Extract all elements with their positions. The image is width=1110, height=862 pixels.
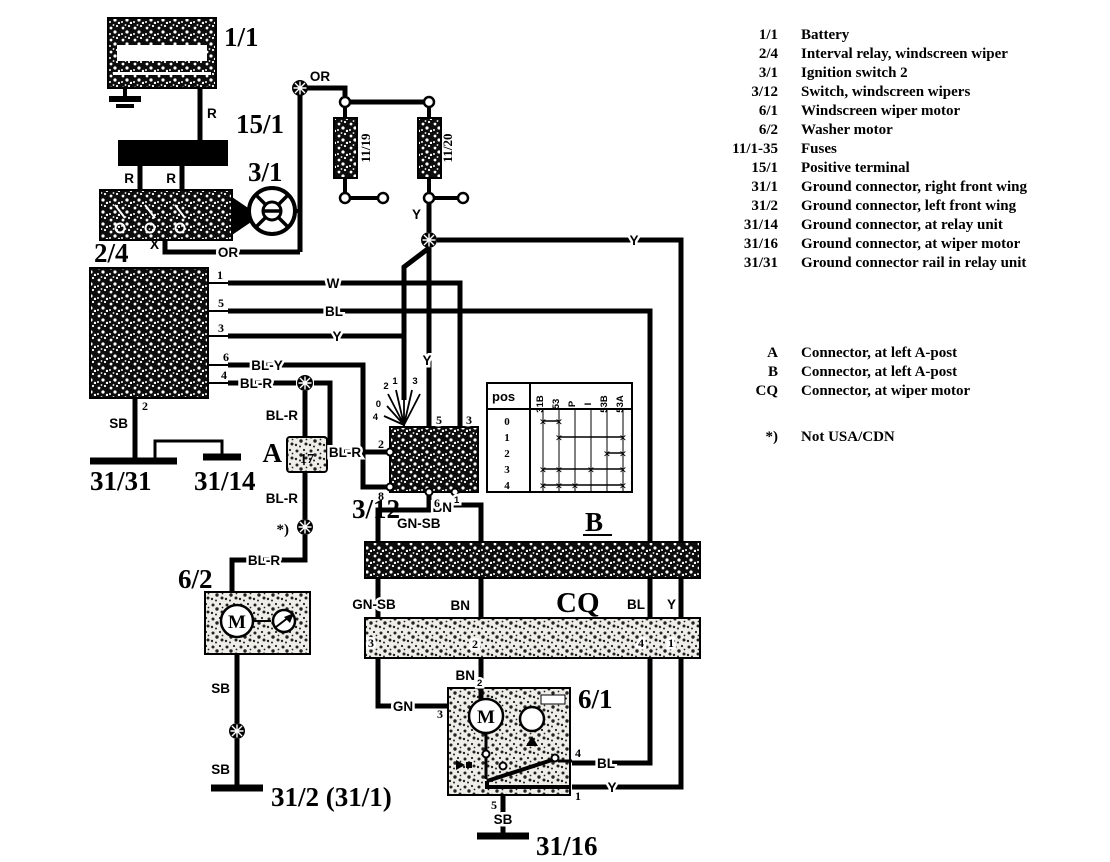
cq-pin-4: 4: [638, 636, 644, 650]
relay-pin-3: 3: [218, 321, 224, 335]
wire-label-sb: SB: [109, 416, 128, 431]
washer-m-letter: M: [228, 612, 246, 633]
legend-desc: Ground connector rail in relay unit: [778, 254, 1026, 273]
wire-label-y: Y: [667, 597, 676, 612]
wire-label-bl-r: BL-R: [266, 408, 298, 423]
relay-pin-6: 6: [223, 350, 229, 364]
legend-desc: Ground connector, at wiper motor: [778, 235, 1020, 254]
legend-row: 11/1-35Fuses: [700, 140, 1108, 159]
legend-desc: Ignition switch 2: [778, 64, 908, 83]
cq-pin-3: 3: [368, 636, 374, 650]
wire-label-sb: SB: [211, 681, 230, 696]
legend-id: 31/14: [700, 216, 778, 235]
fuse-terminal: [458, 193, 468, 203]
pos-table-header: pos: [492, 389, 515, 404]
legend-id: B: [700, 363, 778, 382]
switch-pin: [387, 484, 394, 491]
washer-motor-label: 6/2: [178, 564, 213, 594]
legend-note-text: Not USA/CDN: [778, 428, 895, 447]
ground-31-2-label: 31/2 (31/1): [271, 782, 392, 812]
positive-terminal-label: 15/1: [236, 109, 284, 139]
pos-table-contact-mark: ×: [619, 446, 626, 461]
pos-table-row-label: 0: [504, 416, 510, 428]
motor-m-letter: M: [477, 707, 495, 728]
legend: 1/1Battery2/4Interval relay, windscreen …: [700, 0, 1108, 862]
legend-id: A: [700, 344, 778, 363]
wiper-switch-body: [390, 427, 478, 492]
ground-31-16-label: 31/16: [536, 831, 598, 861]
pos-table-contact-mark: ×: [555, 430, 562, 445]
cq-pin-2: 2: [472, 637, 478, 651]
interval-relay-body: [90, 268, 208, 398]
legend-row: 31/16Ground connector, at wiper motor: [700, 235, 1108, 254]
wire-label-bl-y: BL-Y: [251, 358, 283, 373]
wire-label-r: R: [124, 171, 134, 186]
pos-table-contact-mark: ×: [619, 430, 626, 445]
legend-id: 31/2: [700, 197, 778, 216]
wire-label-gn-sb: GN-SB: [352, 597, 396, 612]
legend-desc: Windscreen wiper motor: [778, 102, 960, 121]
legend-row: AConnector, at left A-post: [700, 344, 1108, 363]
motor-pin-1: 1: [575, 789, 581, 803]
pos-table-terminal-label: 53: [551, 399, 562, 410]
legend-row: 3/12Switch, windscreen wipers: [700, 83, 1108, 102]
motor-slot: [541, 695, 565, 704]
legend-row: 31/1Ground connector, right front wing: [700, 178, 1108, 197]
pos-table-contact-mark: ×: [539, 462, 546, 477]
pos-table-contact-mark: ×: [539, 414, 546, 429]
pos-table-contact-mark: ×: [539, 478, 546, 493]
motor-pin-4: 4: [575, 746, 581, 760]
switch-pin: [387, 449, 394, 456]
legend-desc: Fuses: [778, 140, 837, 159]
pos-table-contact-mark: ×: [571, 478, 578, 493]
legend-desc: Connector, at wiper motor: [778, 382, 970, 401]
motor-contact: [500, 763, 507, 770]
splice-connector: [421, 232, 437, 248]
positive-terminal-bar: [118, 140, 228, 166]
wire-label-bl-r: BL-R: [266, 491, 298, 506]
legend-id: 31/1: [700, 178, 778, 197]
fan-pos-2: 2: [383, 381, 388, 392]
legend-desc: Connector, at left A-post: [778, 363, 957, 382]
legend-row: 31/14Ground connector, at relay unit: [700, 216, 1108, 235]
splice-connector: [292, 80, 308, 96]
legend-row: 2/4Interval relay, windscreen wiper: [700, 45, 1108, 64]
pos-table-terminal-label: 31B: [535, 395, 546, 413]
relay-pin-2: 2: [142, 399, 148, 413]
wire-label-y: Y: [607, 780, 616, 795]
splice-connector: [297, 375, 313, 391]
cq-pin-1: 1: [668, 636, 674, 650]
relay-label: 2/4: [94, 238, 129, 268]
wire-label-bn: BN: [456, 668, 476, 683]
legend-row: 15/1Positive terminal: [700, 159, 1108, 178]
motor-contact: [483, 751, 490, 758]
battery-line: [113, 72, 211, 75]
motor-square-mark: [466, 762, 472, 768]
park-contact-circle: [520, 707, 544, 731]
wire-label-w: W: [327, 276, 340, 291]
legend-desc: Ground connector, left front wing: [778, 197, 1016, 216]
fan-pos-0: 0: [401, 373, 406, 384]
legend-row: 1/1Battery: [700, 26, 1108, 45]
pos-table-contact-mark: ×: [555, 462, 562, 477]
fuse-terminal: [340, 97, 350, 107]
switch-pin-8: 8: [378, 489, 384, 503]
legend-desc: Ground connector, right front wing: [778, 178, 1027, 197]
connector-cq-bar: [365, 618, 700, 658]
legend-row: 6/1Windscreen wiper motor: [700, 102, 1108, 121]
pos-table-row-label: 4: [504, 480, 510, 492]
relay-pin-1: 1: [217, 268, 223, 282]
connector-b-bar: [365, 542, 700, 578]
pos-table-row-label: 3: [504, 464, 510, 476]
motor-pin-5: 5: [491, 798, 497, 812]
legend-note: *) Not USA/CDN: [700, 428, 1108, 447]
legend-connectors: AConnector, at left A-postBConnector, at…: [700, 344, 1108, 401]
fan-pos-3: 3: [412, 376, 417, 387]
wire-label-bn: BN: [451, 598, 471, 613]
legend-id: 6/2: [700, 121, 778, 140]
switch-pin-3: 3: [466, 413, 472, 427]
wire-label-bl-r: BL-R: [329, 445, 361, 460]
switch-position-table: pos 31B53PI53B53A0××1××2××3××××4××××: [487, 383, 632, 493]
fuse-11-20-label: 11/20: [440, 134, 455, 163]
fan-pos-1: 1: [392, 376, 398, 387]
pos-table-row-label: 2: [504, 448, 510, 460]
ignition-label: 3/1: [248, 157, 283, 187]
splice-connector: [229, 723, 245, 739]
wire-label-bl: BL: [597, 756, 615, 771]
legend-desc: Switch, windscreen wipers: [778, 83, 970, 102]
fuse-terminal: [340, 193, 350, 203]
wire-fuse-bottoms: [345, 178, 429, 193]
switch-pin-5: 5: [436, 413, 442, 427]
wire-fuse-tops: [345, 107, 429, 118]
legend-desc: Ground connector, at relay unit: [778, 216, 1003, 235]
legend-id: 11/1-35: [700, 140, 778, 159]
not-usa-mark: *): [277, 522, 290, 538]
pos-table-contact-mark: ×: [619, 478, 626, 493]
legend-id: 3/1: [700, 64, 778, 83]
wire-label-sb: SB: [494, 812, 513, 827]
wiring-diagram-page: pos 31B53PI53B53A0××1××2××3××××4××××: [0, 0, 1110, 862]
connector-a-pin-label: 17: [300, 452, 314, 467]
wire-label-bl: BL: [627, 597, 645, 612]
wire-label-y: Y: [629, 233, 638, 248]
legend-id: 15/1: [700, 159, 778, 178]
legend-row: 31/2Ground connector, left front wing: [700, 197, 1108, 216]
legend-components: 1/1Battery2/4Interval relay, windscreen …: [700, 26, 1108, 273]
legend-id: 6/1: [700, 102, 778, 121]
relay-pin-4: 4: [221, 368, 227, 382]
wire-label-bn-sub: 2: [477, 678, 482, 689]
wire-label-or: OR: [218, 245, 239, 260]
fuse-11-19-label: 11/19: [358, 133, 373, 162]
pos-table-contact-mark: ×: [587, 462, 594, 477]
ground-31-14-label: 31/14: [194, 466, 256, 496]
relay-pin-5: 5: [218, 296, 224, 310]
wire-label-r: R: [166, 171, 176, 186]
legend-row: 31/31Ground connector rail in relay unit: [700, 254, 1108, 273]
wire-label-gn: GN: [393, 699, 413, 714]
pos-table-terminal-label: 53B: [599, 395, 610, 413]
fuse-terminal: [378, 193, 388, 203]
wire-label-y: Y: [422, 353, 431, 368]
ignition-switch-symbol: [100, 188, 295, 240]
wire-or-top: [307, 88, 345, 96]
legend-desc: Washer motor: [778, 121, 893, 140]
pin-labels: 1 5 3 6 4 2 5 3 2 8 6 2 1 0 3 0 4 3 2 4 …: [142, 268, 674, 812]
wiper-motor-label: 6/1: [578, 684, 613, 714]
wire-label-sb: SB: [211, 762, 230, 777]
fuse-11-19-body: [334, 118, 357, 178]
legend-row: BConnector, at left A-post: [700, 363, 1108, 382]
ground-31-31-label: 31/31: [90, 466, 152, 496]
legend-desc: Positive terminal: [778, 159, 910, 178]
legend-desc: Connector, at left A-post: [778, 344, 957, 363]
pos-table-terminal-label: P: [567, 400, 578, 407]
legend-row: CQConnector, at wiper motor: [700, 382, 1108, 401]
pos-table-row-label: 1: [504, 432, 510, 444]
wire-label-gn-sb: GN-SB: [397, 516, 441, 531]
wiper-motor-symbol: [448, 688, 572, 795]
wire-label-y: Y: [332, 329, 341, 344]
legend-id: 2/4: [700, 45, 778, 64]
connector-cq-label: CQ: [556, 587, 600, 619]
fuse-terminal: [424, 97, 434, 107]
pos-table-contact-mark: ×: [555, 414, 562, 429]
switch-pin-6: 6: [434, 496, 440, 510]
legend-id: 3/12: [700, 83, 778, 102]
fan-pos-left-0: 0: [376, 399, 381, 410]
wire-label-y: Y: [412, 207, 421, 222]
legend-id: 31/16: [700, 235, 778, 254]
legend-note-symbol: *): [700, 428, 778, 447]
connector-b-label: B: [585, 507, 603, 537]
wire-label-bl-r: BL-R: [248, 553, 280, 568]
pos-table-contact-mark: ×: [555, 478, 562, 493]
wiper-switch-label: 3/12: [352, 494, 400, 524]
motor-contact: [552, 755, 559, 762]
wire-label-x: X: [150, 237, 159, 252]
washer-motor-symbol: [205, 592, 310, 654]
legend-desc: Battery: [778, 26, 849, 45]
switch-pin: [426, 489, 433, 496]
legend-row: 3/1Ignition switch 2: [700, 64, 1108, 83]
wire-label-r: R: [207, 106, 217, 121]
splice-connector: [297, 519, 313, 535]
legend-id: CQ: [700, 382, 778, 401]
fuse-11-20-body: [418, 118, 441, 178]
legend-id: 1/1: [700, 26, 778, 45]
wire-label-bl: BL: [325, 304, 343, 319]
pos-table-terminal-label: 53A: [615, 395, 626, 413]
battery-band: [117, 45, 207, 61]
switch-pin-2: 2: [378, 437, 384, 451]
legend-row: *) Not USA/CDN: [700, 428, 1108, 447]
legend-row: 6/2Washer motor: [700, 121, 1108, 140]
fuse-terminal: [424, 193, 434, 203]
connector-a-label: A: [263, 438, 283, 468]
fan-pos-left-4: 4: [373, 412, 379, 423]
motor-pin-3: 3: [437, 707, 443, 721]
pos-table-contact-mark: ×: [603, 446, 610, 461]
legend-id: 31/31: [700, 254, 778, 273]
wire-label-bn-sup: 1: [454, 495, 460, 506]
pos-table-contact-mark: ×: [619, 462, 626, 477]
pos-table-terminal-label: I: [583, 403, 594, 406]
battery-label: 1/1: [224, 22, 259, 52]
wire-label-bl-r: BL-R: [240, 376, 272, 391]
legend-desc: Interval relay, windscreen wiper: [778, 45, 1008, 64]
wire-label-or: OR: [310, 69, 331, 84]
